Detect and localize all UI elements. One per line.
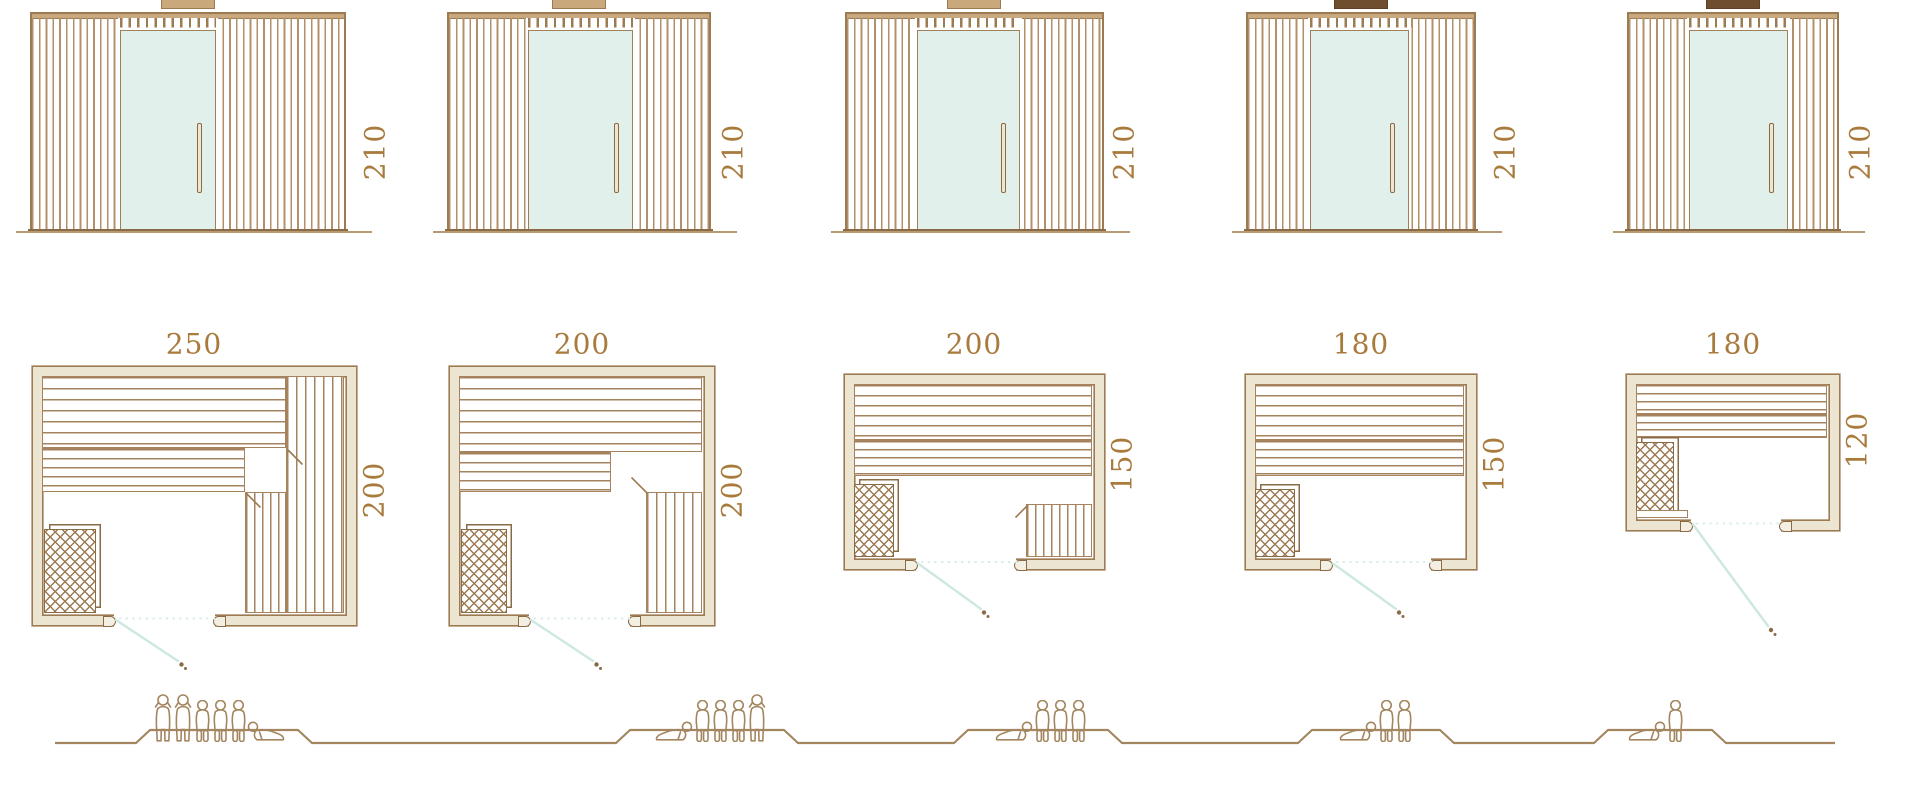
plan-depth-label: 120	[1841, 412, 1874, 468]
capacity-ground-line	[55, 730, 1835, 743]
heater	[44, 529, 96, 613]
reclining-person-icon	[653, 721, 693, 742]
wall-end-cap	[1320, 560, 1333, 571]
elevation-view	[447, 12, 711, 232]
reclining-person-icon	[993, 721, 1033, 742]
ground-line-ext	[433, 231, 737, 233]
heater	[1636, 442, 1674, 518]
plan-width-label: 180	[1705, 328, 1761, 361]
door-handle	[614, 123, 619, 193]
capacity-figures	[1337, 700, 1413, 742]
plan-view	[1627, 375, 1839, 530]
bench-upper-tier	[42, 376, 286, 448]
plan-width-label: 200	[946, 328, 1002, 361]
elevation-height-label: 210	[1108, 124, 1141, 180]
plan-depth-label: 200	[716, 462, 749, 518]
bench-lower-tier	[1636, 414, 1827, 438]
elevation-view	[845, 12, 1104, 232]
sitting-person-icon	[694, 700, 711, 742]
sitting-person-icon	[1052, 700, 1069, 742]
reclining-person-icon	[1626, 721, 1666, 742]
elevation-height-label: 210	[1489, 124, 1522, 180]
plan-view	[33, 367, 356, 625]
reclining-person-icon	[247, 721, 287, 742]
heater	[461, 529, 507, 613]
sitting-person-icon	[212, 700, 229, 742]
heater	[1255, 489, 1295, 557]
plan-view	[845, 375, 1104, 569]
elevation-view	[30, 12, 346, 232]
wall-end-cap	[1779, 521, 1792, 532]
wall-end-cap	[518, 616, 531, 627]
door-opening	[1331, 558, 1431, 572]
door-handle	[1769, 123, 1774, 193]
roof-vent-block	[1334, 0, 1388, 9]
side-bench-upper	[286, 376, 344, 613]
ground-line-ext	[1232, 231, 1502, 233]
roof-vent-block	[552, 0, 606, 9]
capacity-figures	[653, 694, 767, 742]
heater-plinth	[1636, 510, 1688, 518]
sitting-person-icon	[1396, 700, 1413, 742]
sitting-person-icon	[1667, 700, 1684, 742]
heater	[854, 484, 894, 557]
side-bench-lower	[245, 492, 286, 613]
capacity-figures	[993, 700, 1087, 742]
standing-person-icon	[153, 694, 173, 742]
door-handle	[1390, 123, 1395, 193]
side-bench	[646, 492, 702, 613]
wall-end-cap	[905, 560, 918, 571]
roof-vent-block	[161, 0, 215, 9]
standing-person-icon	[173, 694, 193, 742]
glass-door	[1689, 30, 1788, 230]
plan-depth-label: 150	[1478, 436, 1511, 492]
bench-lower-tier	[854, 440, 1092, 476]
bench-upper-tier	[459, 376, 702, 452]
wall-end-cap	[1014, 560, 1027, 571]
bench-lower-tier	[459, 452, 611, 492]
plan-width-label: 180	[1333, 328, 1389, 361]
glass-door	[917, 30, 1020, 230]
plan-width-label: 250	[166, 328, 222, 361]
glass-door	[120, 30, 216, 230]
door-opening	[916, 558, 1016, 572]
elevation-height-label: 210	[717, 124, 750, 180]
door-opening	[1691, 519, 1781, 533]
sitting-person-icon	[730, 700, 747, 742]
sitting-person-icon	[1378, 700, 1395, 742]
plan-depth-label: 200	[358, 462, 391, 518]
plan-view	[450, 367, 714, 625]
capacity-figures	[153, 694, 287, 742]
ground-line-ext	[16, 231, 372, 233]
step-bench	[1026, 504, 1092, 557]
roof-vent-block	[947, 0, 1001, 9]
plan-view	[1246, 375, 1476, 569]
bench-upper-tier	[1255, 384, 1464, 440]
capacity-figures	[1626, 700, 1684, 742]
bench-lower-tier	[42, 448, 245, 492]
door-handle	[197, 123, 202, 193]
door-handle	[1001, 123, 1006, 193]
sitting-person-icon	[194, 700, 211, 742]
glass-door	[1310, 30, 1409, 230]
wall-end-cap	[103, 616, 116, 627]
bench-upper-tier	[854, 384, 1092, 440]
door-opening	[529, 614, 630, 628]
glass-door	[528, 30, 633, 230]
sitting-person-icon	[230, 700, 247, 742]
plan-width-label: 200	[554, 328, 610, 361]
bench-lower-tier	[1255, 440, 1464, 476]
elevation-view	[1246, 12, 1476, 232]
ground-line-ext	[831, 231, 1130, 233]
reclining-person-icon	[1337, 721, 1377, 742]
sitting-person-icon	[1070, 700, 1087, 742]
wall-end-cap	[1680, 521, 1693, 532]
wall-end-cap	[1429, 560, 1442, 571]
wall-end-cap	[628, 616, 641, 627]
plan-depth-label: 150	[1106, 436, 1139, 492]
elevation-height-label: 210	[1844, 124, 1877, 180]
door-handle-dots	[179, 610, 1776, 670]
elevation-height-label: 210	[359, 124, 392, 180]
standing-person-icon	[747, 694, 767, 742]
bench-upper-tier	[1636, 384, 1827, 414]
wall-end-cap	[213, 616, 226, 627]
sauna-size-diagram: 210 250 200 210 200	[0, 0, 1920, 789]
sitting-person-icon	[712, 700, 729, 742]
roof-vent-block	[1706, 0, 1760, 9]
sitting-person-icon	[1034, 700, 1051, 742]
ground-line-ext	[1613, 231, 1865, 233]
door-opening	[114, 614, 215, 628]
elevation-view	[1627, 12, 1839, 232]
